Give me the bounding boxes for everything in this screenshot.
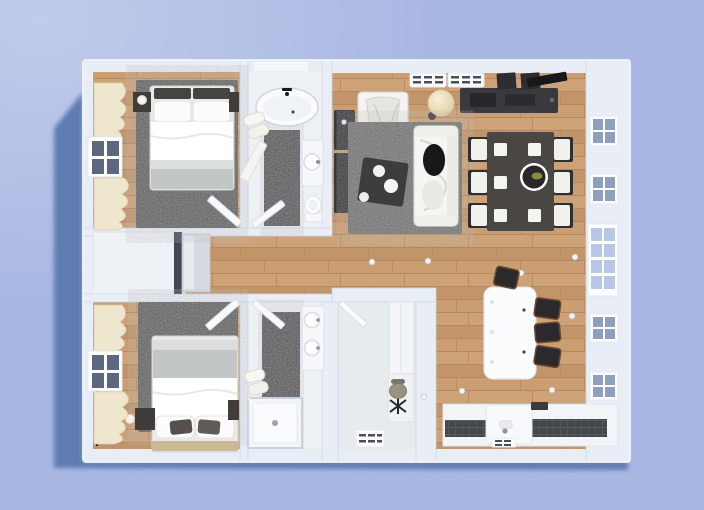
kitchen-sink	[500, 421, 512, 428]
hall-closet-block[interactable]	[93, 232, 174, 294]
dining-set	[468, 132, 573, 231]
headboard-cushion-left	[154, 88, 191, 99]
wall-hall-bottom	[83, 294, 332, 302]
plate	[359, 192, 369, 202]
sofa-armrest	[416, 126, 456, 137]
chair-backrest	[391, 379, 405, 384]
accent-pillow	[197, 419, 220, 435]
centerpiece-bowl[interactable]	[520, 163, 548, 191]
window	[590, 372, 618, 400]
sofa-armrest	[416, 215, 456, 226]
shower-drain	[272, 420, 278, 426]
worktop-right	[529, 419, 607, 437]
bathroom1-window-niche	[254, 62, 308, 71]
sofa[interactable]	[414, 126, 458, 226]
bedroom2-nightstand-right[interactable]	[228, 400, 239, 420]
bedroom2-bed[interactable]	[152, 336, 238, 452]
floorplan-render	[0, 0, 704, 510]
speaker-left	[496, 72, 516, 89]
bedroom1-nightstand-right[interactable]	[229, 92, 239, 112]
toilet[interactable]	[305, 196, 322, 222]
duvet	[151, 122, 233, 162]
cabinet-knob	[341, 119, 346, 124]
sofa-back	[447, 130, 458, 222]
window	[590, 314, 618, 342]
floorplan-render-stage	[0, 0, 704, 510]
pillow	[154, 101, 191, 122]
tub-drain	[291, 110, 294, 113]
accent-pillow	[169, 419, 192, 435]
lamp-globe	[428, 90, 454, 116]
foot-blanket	[151, 169, 233, 189]
window	[590, 174, 618, 204]
hallway	[93, 232, 210, 294]
wall-office-kitchen	[416, 302, 436, 462]
plinth-vent	[492, 438, 516, 447]
wall-office-top	[332, 288, 436, 302]
foot-blanket	[153, 350, 237, 378]
tub-faucet	[282, 88, 292, 91]
bedroom-top-left	[88, 80, 242, 230]
office-radiator	[356, 430, 384, 447]
balcony-door[interactable]	[588, 224, 618, 296]
hall-wardrobe-groove	[174, 232, 182, 294]
counter-run[interactable]	[443, 402, 618, 447]
window	[590, 116, 618, 146]
shower[interactable]	[248, 398, 302, 448]
plate	[384, 179, 398, 193]
dining-chairs-left[interactable]	[468, 137, 489, 228]
worktop-left	[445, 420, 489, 437]
headboard	[152, 441, 238, 451]
kitchen-faucet	[502, 428, 507, 433]
wall-bed2-bath2	[240, 302, 248, 462]
bathroom1-sink[interactable]	[302, 140, 323, 186]
duvet	[153, 378, 237, 418]
bedroom-bottom-left	[88, 299, 240, 452]
pillow	[193, 101, 230, 122]
double-vanity[interactable]	[302, 306, 324, 370]
plate	[373, 165, 385, 177]
wall-bed1-bath1	[240, 60, 248, 230]
headboard-cushion-right	[193, 88, 230, 99]
bedroom1-bed[interactable]	[150, 86, 234, 190]
dining-chairs-right[interactable]	[552, 137, 573, 228]
hall-console-highlight	[184, 236, 194, 290]
blanket-light-band	[151, 160, 233, 169]
bedside-lamp	[138, 96, 147, 105]
kitchen-island[interactable]	[484, 287, 536, 379]
bedroom2-nightstand-left[interactable]	[135, 408, 155, 430]
cooktop	[531, 402, 548, 410]
bathtub[interactable]	[256, 88, 318, 126]
